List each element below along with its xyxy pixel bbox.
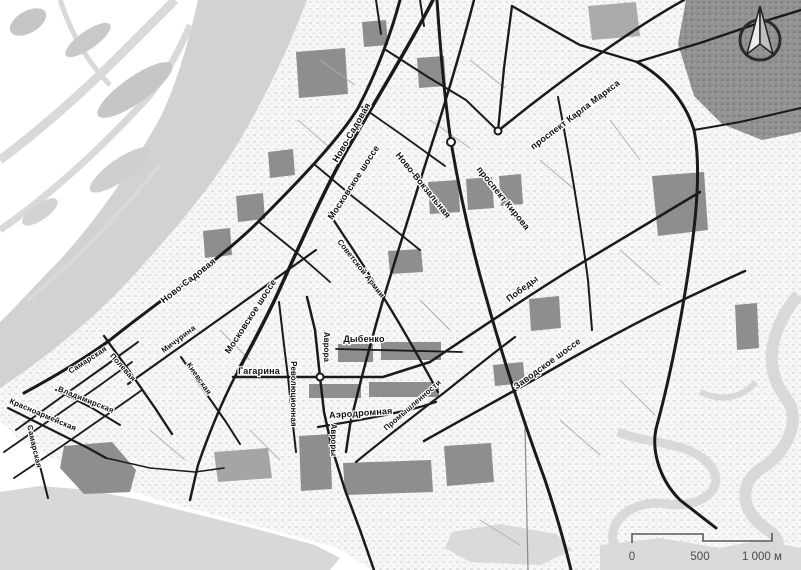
street-label: Аврора (322, 332, 331, 363)
scale-tick-1000: 1 000 м (742, 551, 782, 563)
scale-tick-500: 500 (690, 551, 709, 563)
scale-tick-0: 0 (629, 551, 635, 563)
street-label: Революционная (289, 361, 298, 426)
street-label: Авроры (329, 424, 338, 457)
city-map: Ново-Садовая Московское шоссе Ново-Вокза… (0, 0, 801, 570)
street-label: Дыбенко (343, 334, 385, 344)
street-label: Гагарина (238, 366, 281, 376)
map-viewport: Ново-Садовая Московское шоссе Ново-Вокза… (0, 0, 801, 570)
